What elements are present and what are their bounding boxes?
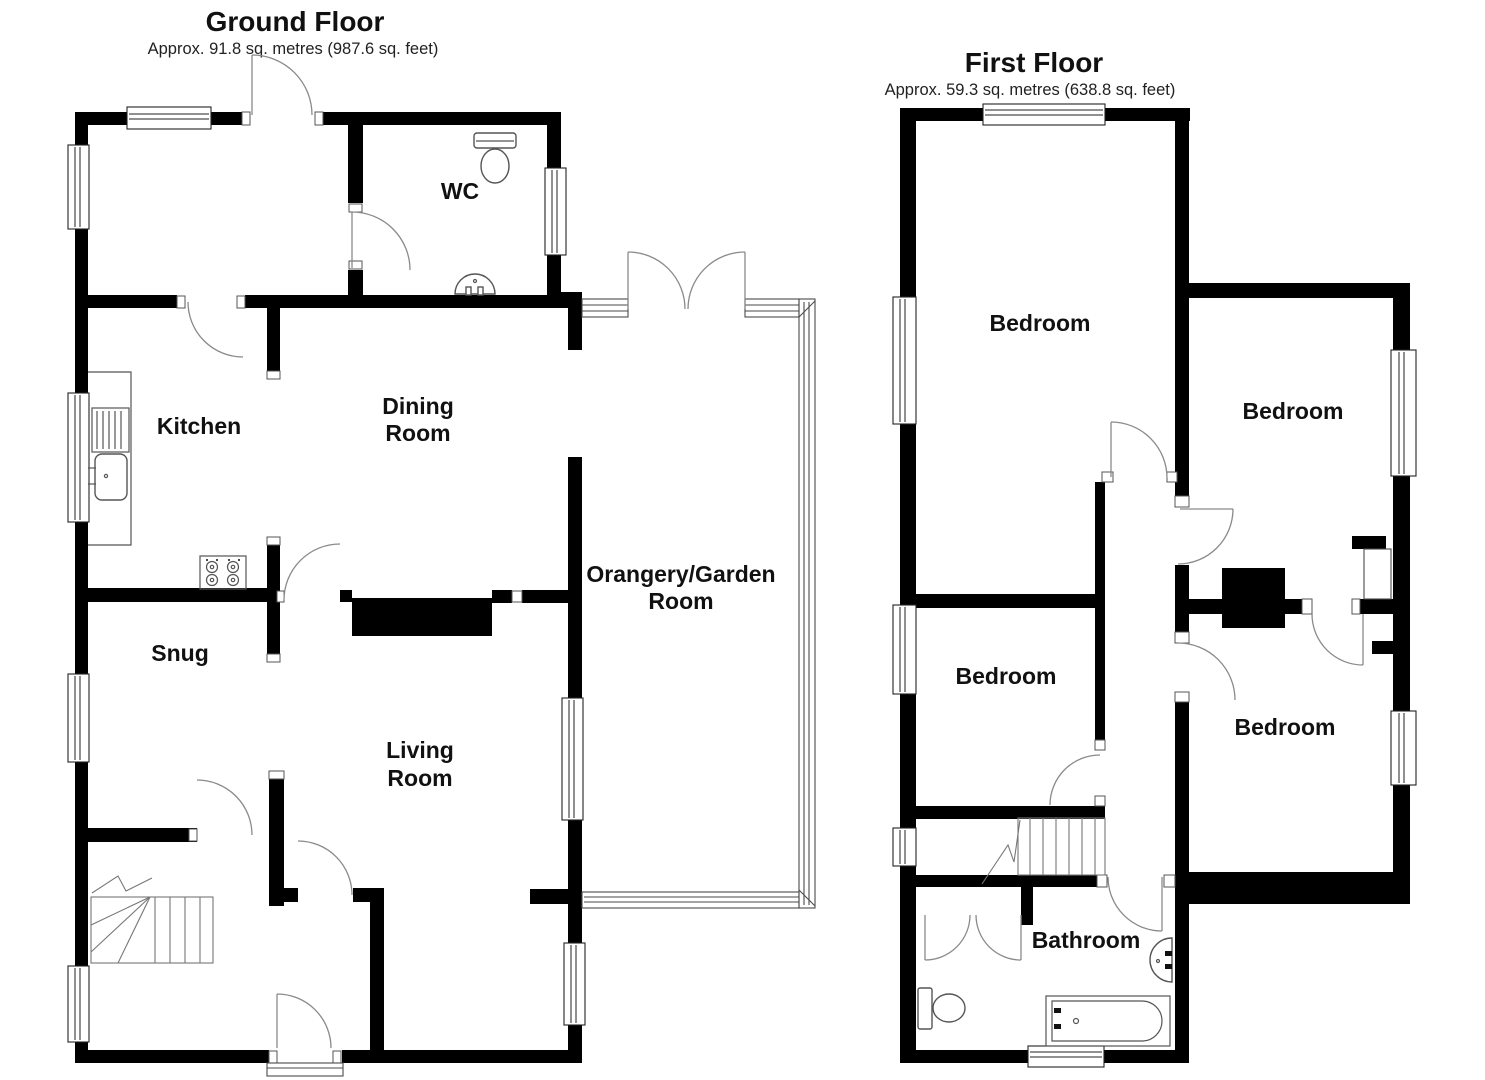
room-label-living-2: Room xyxy=(387,765,452,791)
bedroom-right-door xyxy=(1178,509,1233,564)
stairs-icon xyxy=(91,876,213,963)
window xyxy=(68,393,89,522)
room-label-kitchen: Kitchen xyxy=(157,413,241,439)
floorplan-page: Ground Floor Approx. 91.8 sq. metres (98… xyxy=(0,0,1485,1080)
window xyxy=(983,104,1105,125)
first-floor-plan: First Floor Approx. 59.3 sq. metres (638… xyxy=(885,47,1416,1067)
cupboard-double-doors xyxy=(925,915,1021,960)
room-label-living-1: Living xyxy=(386,737,454,763)
dining-door xyxy=(284,544,340,600)
hob-icon xyxy=(200,556,246,589)
room-label-orangery-2: Room xyxy=(648,588,713,614)
stairs-icon xyxy=(982,818,1105,884)
front-door xyxy=(277,994,331,1048)
window xyxy=(564,943,585,1025)
window xyxy=(582,299,628,317)
living-room-door xyxy=(298,841,352,895)
toilet-icon xyxy=(474,133,516,183)
ground-floor-plan: Ground Floor Approx. 91.8 sq. metres (98… xyxy=(68,6,815,1076)
window xyxy=(745,299,799,317)
basin-icon xyxy=(455,274,495,295)
toilet-icon xyxy=(918,988,965,1029)
window xyxy=(562,698,583,820)
basin-icon xyxy=(1150,938,1172,982)
first-floor-windows xyxy=(893,104,1416,1067)
ground-floor-title: Ground Floor xyxy=(206,6,385,37)
built-in-closet xyxy=(1364,549,1391,599)
bathroom-door xyxy=(1108,877,1162,931)
ground-floor-subtitle: Approx. 91.8 sq. metres (987.6 sq. feet) xyxy=(148,40,439,58)
room-label-bedroom-right: Bedroom xyxy=(1243,398,1344,424)
window xyxy=(893,605,916,694)
bathroom-fixtures xyxy=(918,938,1172,1046)
front-porch-step xyxy=(267,1063,343,1076)
room-label-orangery-1: Orangery/Garden xyxy=(586,561,775,587)
bedroom-chimney-door xyxy=(1312,614,1363,665)
bedroom-front-door xyxy=(1111,422,1167,478)
room-label-snug: Snug xyxy=(151,640,209,666)
window xyxy=(545,168,566,255)
room-label-bathroom: Bathroom xyxy=(1032,927,1141,953)
wc-fixtures xyxy=(455,133,516,295)
window xyxy=(68,674,89,762)
french-doors xyxy=(628,252,745,309)
room-label-dining-1: Dining xyxy=(382,393,454,419)
room-label-bedroom-back-right: Bedroom xyxy=(1235,714,1336,740)
room-label-bedroom-middle: Bedroom xyxy=(956,663,1057,689)
first-floor-subtitle: Approx. 59.3 sq. metres (638.8 sq. feet) xyxy=(885,81,1176,99)
window xyxy=(893,828,916,866)
chimney-breast xyxy=(1222,568,1285,628)
room-label-wc: WC xyxy=(441,178,479,204)
bath-icon xyxy=(1046,996,1170,1046)
drainer-icon xyxy=(92,408,129,452)
window xyxy=(68,145,89,229)
room-label-bedroom-front: Bedroom xyxy=(990,310,1091,336)
orangery-glazed-wall xyxy=(799,299,815,908)
window xyxy=(1028,1046,1104,1067)
kitchen-door xyxy=(188,302,243,357)
room-label-dining-2: Room xyxy=(385,420,450,446)
kitchen-sink-icon xyxy=(88,454,127,500)
window xyxy=(1391,350,1416,476)
kitchen-fixtures xyxy=(88,372,246,589)
bedroom-middle-door xyxy=(1050,755,1100,805)
ground-floor-door-jambs xyxy=(177,112,522,1063)
window xyxy=(893,297,916,424)
window xyxy=(1391,711,1416,785)
floorplan-canvas: Ground Floor Approx. 91.8 sq. metres (98… xyxy=(0,0,1485,1080)
ground-floor-walls xyxy=(75,112,582,1063)
snug-door xyxy=(197,780,252,835)
orangery-glazed-wall xyxy=(582,892,799,908)
bedroom-back-right-door xyxy=(1178,643,1235,700)
fireplace-chimney-breast xyxy=(352,598,492,636)
first-floor-title: First Floor xyxy=(965,47,1104,78)
back-door xyxy=(252,55,312,115)
window xyxy=(127,107,211,129)
window xyxy=(68,966,89,1042)
